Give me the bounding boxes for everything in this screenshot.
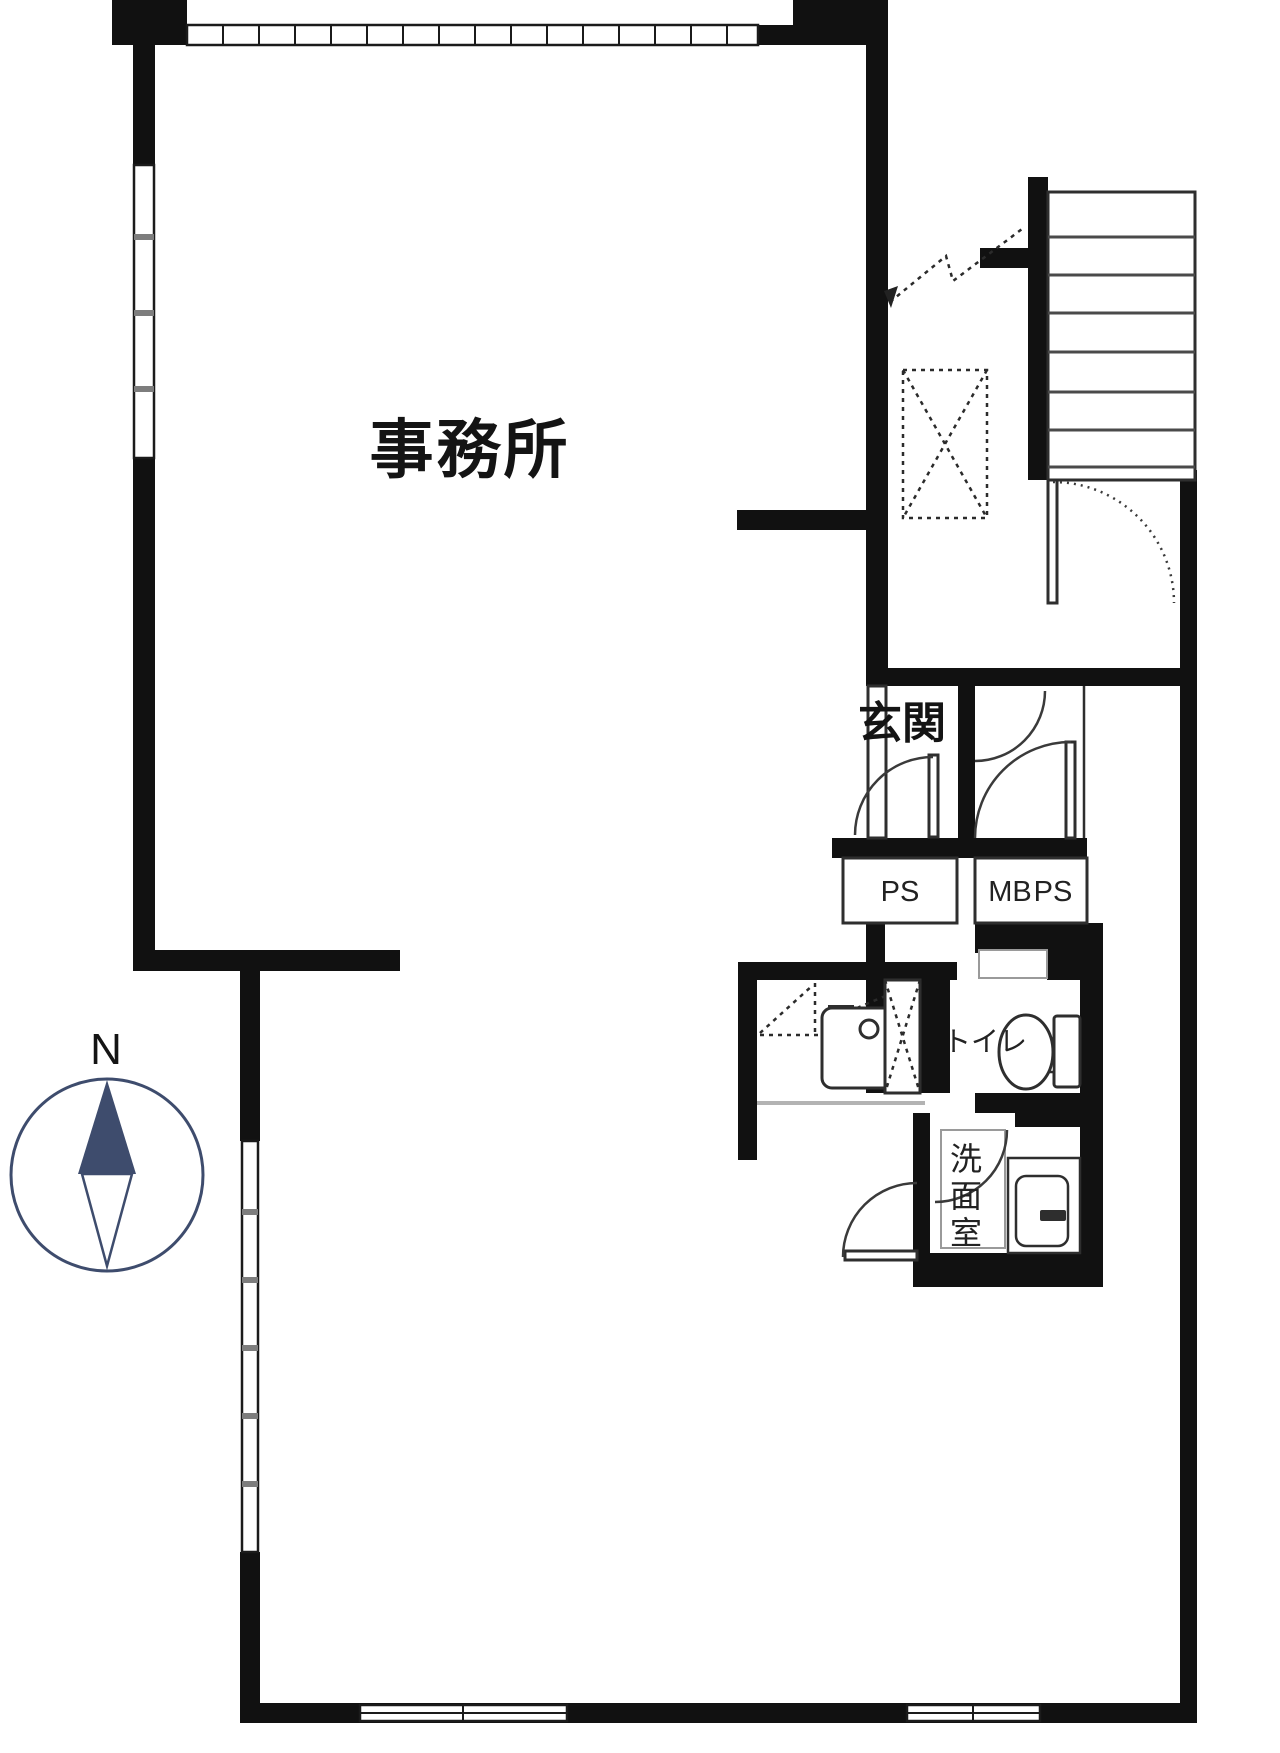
wall-toilet-top — [975, 923, 1103, 953]
wall-office-bottom — [133, 950, 400, 971]
room-label-entrance: 玄関 — [858, 699, 946, 748]
wall-lower-left — [240, 1552, 260, 1723]
compass-north-label: N — [90, 1025, 122, 1074]
washroom-label-char-1: 面 — [950, 1178, 982, 1214]
ps-label: PS — [881, 876, 920, 908]
window-bottom-left-icon — [360, 1705, 567, 1721]
wall-left-upper — [133, 45, 155, 167]
washroom-label-char-0: 洗 — [950, 1141, 982, 1177]
washroom-label-char-2: 室 — [950, 1215, 982, 1251]
floor-plan-svg: N 事務所 玄関 PS MB PS トイレ 洗 面 室 — [0, 0, 1280, 1753]
genkan-door-leaf — [929, 755, 938, 837]
wall-washroom-bottom — [913, 1253, 1103, 1287]
stairs-outline — [1048, 192, 1195, 480]
mbps-ps-label: PS — [1034, 876, 1073, 908]
window-bottom-right-icon — [907, 1705, 1040, 1721]
wall-kitchen-top — [738, 962, 957, 980]
toilet-door — [979, 950, 1047, 978]
wall-kitchen-left — [738, 962, 757, 1160]
wall-left-lower — [133, 458, 155, 971]
wall-top-right-block — [758, 25, 888, 45]
window-lower-left-icon — [242, 1141, 258, 1552]
wall-top-left-block — [112, 0, 187, 45]
wall-top-right-block-upper — [793, 0, 888, 25]
wall-office-spur — [737, 510, 866, 530]
floor-plan-page: N 事務所 玄関 PS MB PS トイレ 洗 面 室 — [0, 0, 1280, 1753]
wall-genkan-right — [958, 686, 975, 838]
window-band-top-icon — [187, 25, 758, 45]
wall-washroom-top — [1015, 1113, 1103, 1127]
wall-entrance-stub — [980, 248, 1048, 268]
stair-door-leaf — [1048, 480, 1057, 603]
hall-door-leaf — [1066, 742, 1075, 838]
duct-shaft-icon — [885, 980, 920, 1093]
lower-door-leaf — [845, 1251, 917, 1260]
wall-genkan-bottom — [832, 838, 1087, 858]
wall-lower-left-stub — [240, 971, 260, 1141]
wall-genkan-top — [866, 668, 1197, 686]
room-label-toilet: トイレ — [943, 1026, 1027, 1057]
window-left-wall-icon — [134, 165, 154, 458]
mb-label: MB — [988, 876, 1032, 908]
wall-office-right — [866, 45, 888, 686]
wall-right-outer — [1180, 470, 1197, 1723]
wall-stair-left — [1028, 177, 1048, 480]
vanity-sink-icon — [1008, 1158, 1080, 1253]
room-label-office: 事務所 — [370, 414, 571, 486]
